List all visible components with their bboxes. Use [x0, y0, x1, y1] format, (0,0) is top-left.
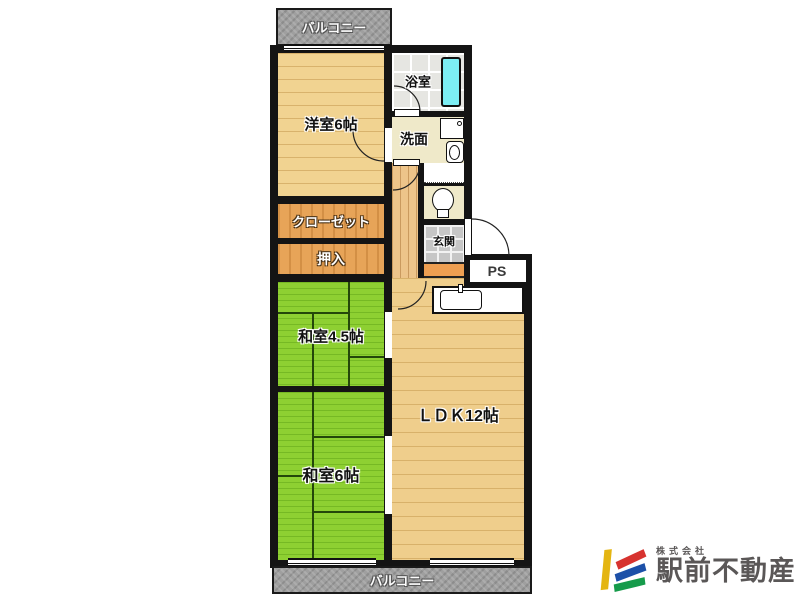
washing-machine-tap-icon — [457, 121, 462, 126]
fusuma-gap-japanese-45 — [385, 312, 392, 358]
door-gap-western — [385, 128, 392, 162]
tatami-line — [312, 436, 384, 438]
room-label-bathroom: 浴室 — [405, 72, 431, 91]
entrance-step — [424, 262, 464, 278]
room-label-western: 洋室6帖 — [304, 114, 357, 135]
floorplan-page: バルコニー — [0, 0, 800, 600]
company-name: 駅前不動産 — [656, 558, 796, 585]
tatami-line — [278, 312, 350, 314]
company-prefix: 株式会社 — [656, 544, 796, 557]
company-logo-icon — [596, 535, 652, 593]
washroom-alcove — [424, 163, 464, 183]
balcony-top-label: バルコニー — [302, 18, 367, 37]
room-label-japanese-6: 和室6帖 — [303, 462, 360, 486]
room-label-pipe-space: PS — [488, 263, 507, 279]
room-label-entrance: 玄関 — [433, 233, 455, 249]
tatami-line — [312, 511, 384, 513]
bathtub — [441, 57, 461, 107]
company-logo: 株式会社 駅前不動産 — [596, 533, 800, 595]
fusuma-gap-japanese-6 — [385, 436, 392, 514]
tatami-line — [312, 312, 314, 386]
balcony-bottom-label: バルコニー — [370, 571, 435, 590]
room-label-ldk: ＬＤＫ12帖 — [417, 402, 499, 426]
room-label-japanese-45: 和室4.5帖 — [298, 326, 364, 347]
front-door-leaf — [464, 218, 472, 256]
bathroom-door-leaf — [394, 109, 420, 117]
tatami-line — [348, 356, 384, 358]
kitchen-faucet-icon — [458, 284, 463, 293]
washroom-door-leaf — [393, 159, 420, 166]
room-label-closet: クローゼット — [292, 212, 370, 231]
hallway — [392, 163, 418, 283]
room-label-washroom: 洗面 — [400, 129, 428, 149]
toilet-tank-icon — [437, 209, 449, 218]
washbasin-bowl-icon — [449, 145, 460, 160]
kitchen-sink — [440, 290, 482, 310]
window-top — [284, 44, 384, 52]
room-label-oshiire: 押入 — [317, 249, 345, 269]
